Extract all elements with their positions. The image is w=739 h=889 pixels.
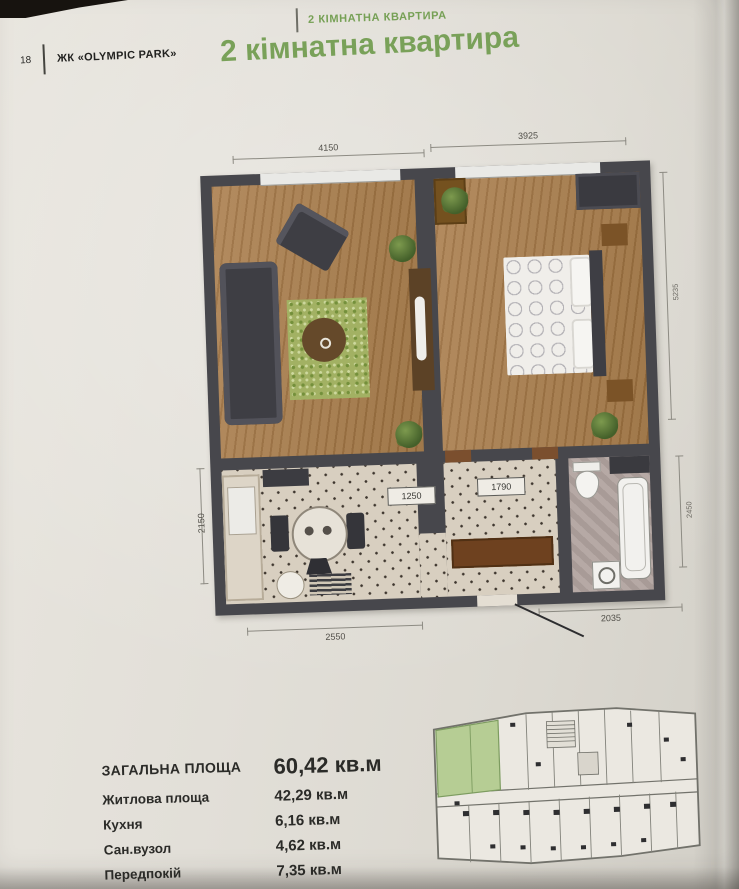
bathtub-inner — [622, 483, 646, 572]
dim-hall-left-label: 1250 — [401, 491, 421, 502]
sofa — [219, 261, 283, 425]
floor-plan: 4150 3925 2150 5235 2450 2550 2035 — [174, 129, 697, 661]
dim-hall-right-label: 1790 — [491, 481, 511, 492]
chair — [270, 515, 289, 552]
dim-hall-left: 1250 — [387, 486, 436, 506]
mini-floor-plan — [425, 695, 733, 887]
area-table: ЗАГАЛЬНА ПЛОЩА 60,42 кв.м Житлова площа … — [101, 753, 434, 884]
entrance-opening — [477, 594, 517, 606]
nightstand — [607, 379, 634, 402]
dim-side-right-top: 5235 — [670, 272, 680, 312]
dim-line-right-bottom — [678, 456, 683, 568]
dim-side-left: 2150 — [196, 503, 207, 543]
bathroom-shelf — [609, 456, 650, 474]
dim-bottom-kitchen: 2550 — [247, 629, 423, 645]
apartment-walls: 1250 1790 — [200, 160, 665, 615]
fridge — [262, 468, 309, 487]
elevator — [578, 752, 599, 775]
photo-corner-shadow — [0, 0, 128, 18]
bedroom-door — [532, 447, 558, 460]
stove — [309, 573, 352, 595]
kitchen-hall-opening — [419, 533, 448, 598]
wardrobe — [575, 172, 640, 210]
running-header-label: 2 КІМНАТНА КВАРТИРА — [308, 10, 447, 26]
bottom-shadow — [0, 867, 739, 889]
dim-bottom-bathroom: 2035 — [539, 611, 683, 626]
header-divider — [296, 8, 299, 32]
dim-hall-right: 1790 — [477, 477, 526, 497]
highlighted-unit — [436, 720, 501, 797]
chair — [346, 513, 365, 550]
living-room-door — [445, 450, 471, 463]
hall-sideboard — [451, 536, 554, 569]
kitchen-worktop — [227, 486, 257, 535]
brochure-page: 2 КІМНАТНА КВАРТИРА 18 ЖК «OLYMPIC PARK»… — [0, 0, 739, 889]
page-curl-shadow — [693, 0, 739, 889]
nightstand — [601, 223, 628, 246]
